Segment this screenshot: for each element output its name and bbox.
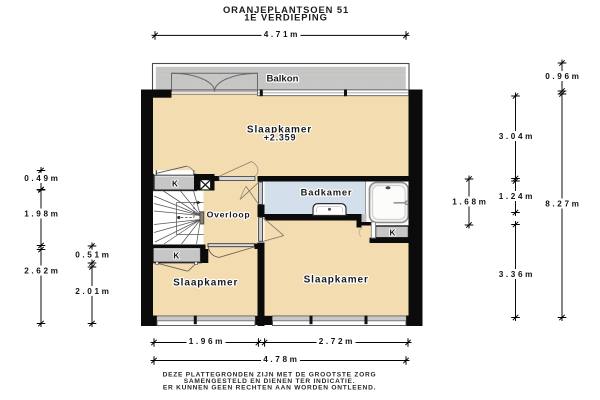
svg-text:ER KUNNEN GEEN RECHTEN AAN WOR: ER KUNNEN GEEN RECHTEN AAN WORDEN ONTLEE… <box>163 385 376 392</box>
svg-text:Slaapkamer: Slaapkamer <box>304 274 369 285</box>
svg-text:1.68m: 1.68m <box>452 197 488 206</box>
svg-text:K: K <box>172 180 178 189</box>
svg-text:2.62m: 2.62m <box>24 266 60 275</box>
svg-text:4.71m: 4.71m <box>264 30 300 39</box>
svg-text:K: K <box>173 251 179 260</box>
svg-text:2.72m: 2.72m <box>319 337 355 346</box>
svg-text:Overloop: Overloop <box>207 209 251 219</box>
svg-text:K: K <box>390 228 396 237</box>
svg-text:2.01m: 2.01m <box>75 287 111 296</box>
svg-text:0.96m: 0.96m <box>545 72 581 81</box>
svg-text:Badkamer: Badkamer <box>301 187 353 198</box>
svg-text:+2.359: +2.359 <box>264 133 297 143</box>
svg-text:4.78m: 4.78m <box>263 355 299 364</box>
svg-text:1E VERDIEPING: 1E VERDIEPING <box>244 12 328 23</box>
svg-text:Slaapkamer: Slaapkamer <box>173 278 238 289</box>
svg-text:1.24m: 1.24m <box>499 192 535 201</box>
svg-text:1.96m: 1.96m <box>189 337 225 346</box>
svg-text:1.98m: 1.98m <box>24 209 60 218</box>
svg-text:3.04m: 3.04m <box>499 132 535 141</box>
svg-text:Balkon: Balkon <box>267 74 299 85</box>
svg-text:8.27m: 8.27m <box>545 199 581 208</box>
svg-text:0.51m: 0.51m <box>75 250 111 259</box>
svg-text:0.49m: 0.49m <box>24 174 60 183</box>
svg-text:3.36m: 3.36m <box>499 270 535 279</box>
